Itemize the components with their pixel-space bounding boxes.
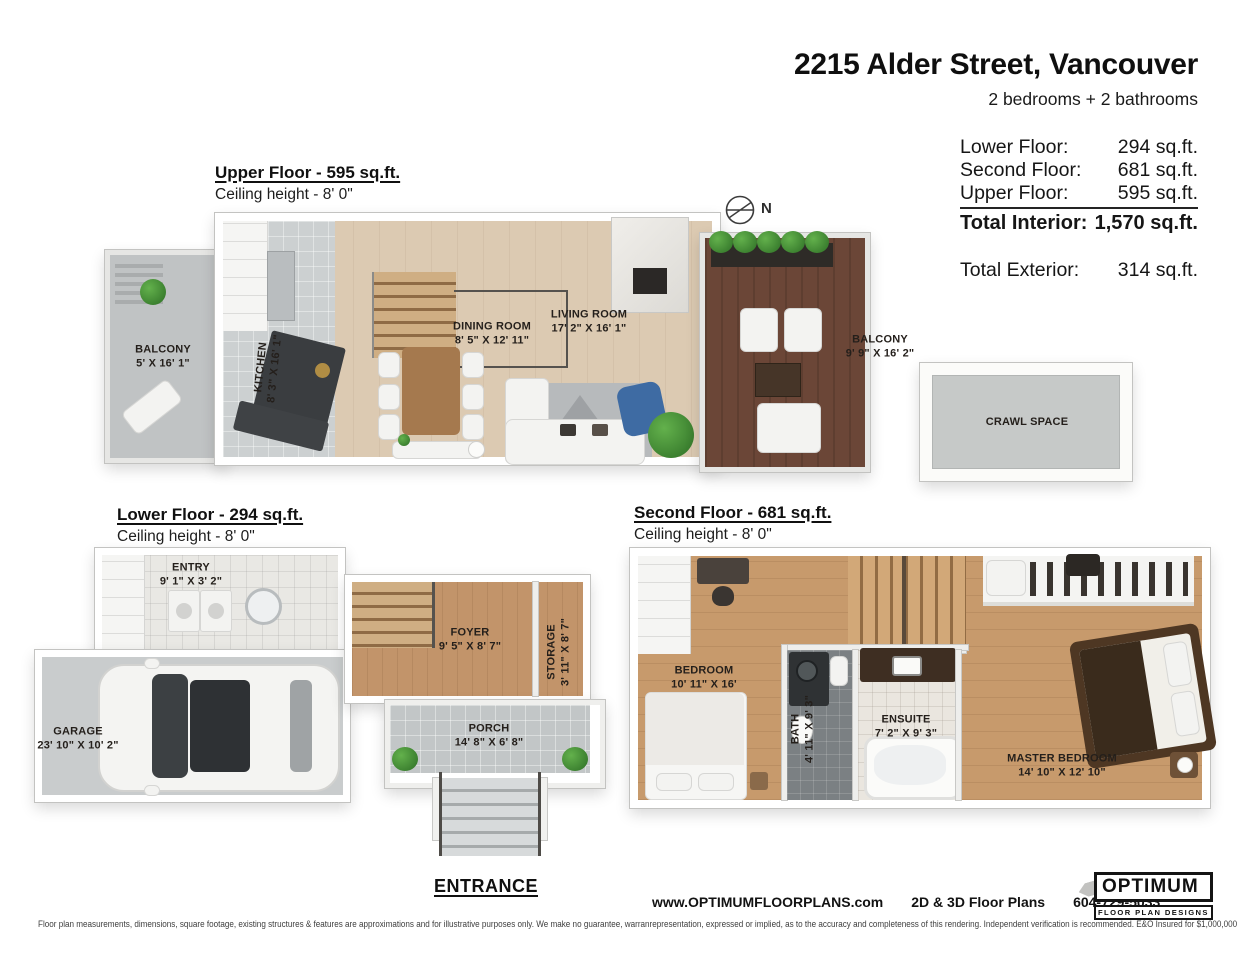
- room-label-bedroom: BEDROOM 10' 11" X 16': [671, 664, 737, 693]
- second-floor-title: Second Floor - 681 sq.ft.: [634, 503, 831, 523]
- firebox: [633, 268, 667, 294]
- room-label-crawl-space: CRAWL SPACE: [986, 415, 1068, 429]
- header-block: 2215 Alder Street, Vancouver 2 bedrooms …: [778, 48, 1198, 282]
- car-rear-window: [290, 680, 312, 772]
- desk: [697, 558, 749, 584]
- bathtub-basin: [874, 745, 946, 785]
- upper-floor-heading: Upper Floor - 595 sq.ft. Ceiling height …: [215, 163, 400, 204]
- bed-bath-subtitle: 2 bedrooms + 2 bathrooms: [778, 89, 1198, 110]
- dining-table: [402, 347, 460, 435]
- master-closet: [983, 556, 1194, 606]
- lower-floor-heading: Lower Floor - 294 sq.ft. Ceiling height …: [117, 505, 303, 546]
- dining-chair: [462, 414, 484, 440]
- bathtub: [864, 736, 962, 800]
- potted-plant: [140, 279, 166, 305]
- kitchen-cabinets: [223, 221, 268, 331]
- room-label-entry: ENTRY 9' 1" X 3' 2": [160, 561, 222, 590]
- floor-lamp: [468, 441, 485, 458]
- stair-divider: [902, 556, 906, 648]
- bath-sink: [796, 660, 818, 682]
- dryer-door: [208, 603, 224, 619]
- area-value: 681 sq.ft.: [1118, 159, 1198, 182]
- compass-icon: [720, 192, 760, 228]
- patio-armchair: [740, 308, 778, 352]
- patio-armchair: [784, 308, 822, 352]
- sofa-cushion: [560, 424, 576, 436]
- area-value: 314 sq.ft.: [1118, 259, 1198, 282]
- dining-chair: [378, 414, 400, 440]
- second-floor-stairs: [848, 556, 966, 648]
- ensuite-sink: [892, 656, 922, 676]
- car-mirror: [144, 658, 160, 669]
- stair-handrail: [538, 772, 541, 856]
- area-label: Total Exterior:: [960, 259, 1079, 282]
- lounge-chair: [121, 378, 184, 436]
- washer: [168, 590, 200, 632]
- dining-chair: [378, 384, 400, 410]
- planter-plant: [733, 231, 757, 253]
- optimum-logo: OPTIMUM FLOOR PLAN DESIGNS: [1094, 872, 1213, 920]
- foyer-stair-railing: [432, 582, 435, 648]
- table-lamp: [1177, 757, 1193, 773]
- car-roof-glass: [190, 680, 250, 772]
- footer-services: 2D & 3D Floor Plans: [911, 894, 1045, 910]
- car-mirror: [144, 785, 160, 796]
- master-bed: [1069, 623, 1217, 770]
- entrance-label: ENTRANCE: [434, 876, 538, 897]
- disclaimer-text: Floor plan measurements, dimensions, squ…: [38, 919, 1237, 929]
- water-heater: [245, 588, 282, 625]
- ensuite-master-wall: [956, 650, 961, 800]
- fruit-bowl: [315, 363, 330, 378]
- sofa-cushion: [592, 424, 608, 436]
- foyer-stairs: [352, 582, 432, 648]
- room-label-living-room: LIVING ROOM 17' 2" X 16' 1": [551, 308, 627, 337]
- stair-treads: [441, 778, 539, 856]
- floorplan-page: 2215 Alder Street, Vancouver 2 bedrooms …: [0, 0, 1242, 960]
- bed-pillow: [656, 773, 692, 791]
- area-row-total-exterior: Total Exterior: 314 sq.ft.: [960, 259, 1198, 282]
- car: [98, 664, 340, 792]
- room-label-storage: STORAGE 3' 11" X 8' 7": [545, 618, 574, 686]
- compass-north-label: N: [761, 200, 772, 217]
- area-label: Lower Floor:: [960, 136, 1068, 159]
- patio-sofa: [757, 403, 821, 453]
- fireplace: [612, 218, 688, 312]
- upper-floor-ceiling: Ceiling height - 8' 0": [215, 186, 400, 204]
- lower-floor-ceiling: Ceiling height - 8' 0": [117, 528, 303, 546]
- console-plant: [398, 434, 410, 446]
- room-label-foyer: FOYER 9' 5" X 8' 7": [439, 626, 501, 655]
- dining-chair: [462, 384, 484, 410]
- area-row-total-interior: Total Interior: 1,570 sq.ft.: [960, 209, 1198, 235]
- stair-handrail: [439, 772, 442, 856]
- porch-shrub: [392, 747, 418, 771]
- area-row-upper: Upper Floor: 595 sq.ft.: [960, 182, 1198, 209]
- room-label-garage: GARAGE 23' 10" X 10' 2": [37, 725, 118, 754]
- room-label-balcony-right: BALCONY 9' 9" X 16' 2": [846, 333, 915, 362]
- second-floor-heading: Second Floor - 681 sq.ft. Ceiling height…: [634, 503, 831, 544]
- room-label-balcony-left: BALCONY 5' X 16' 1": [135, 343, 191, 372]
- room-label-ensuite: ENSUITE 7' 2" X 9' 3": [875, 713, 937, 742]
- desk-chair: [712, 586, 734, 606]
- upper-floor-title: Upper Floor - 595 sq.ft.: [215, 163, 400, 183]
- room-label-bath: BATH 4' 11" X 9' 3": [789, 695, 818, 763]
- planter-plant: [709, 231, 733, 253]
- entry-closet: [102, 555, 145, 651]
- area-table: Lower Floor: 294 sq.ft. Second Floor: 68…: [960, 136, 1198, 282]
- staircase: [372, 272, 456, 358]
- porch-shrub: [562, 747, 588, 771]
- area-label: Upper Floor:: [960, 182, 1068, 205]
- bed-duvet: [646, 693, 744, 765]
- entrance-stairs: [433, 778, 547, 858]
- hanging-clothes: [1030, 562, 1188, 596]
- area-label: Total Interior:: [960, 212, 1087, 235]
- car-windshield: [152, 674, 188, 778]
- area-value: 595 sq.ft.: [1118, 182, 1198, 205]
- bed-pillow: [698, 773, 734, 791]
- area-value: 1,570 sq.ft.: [1095, 212, 1198, 235]
- dining-chair: [462, 352, 484, 378]
- dresser: [986, 560, 1026, 596]
- indoor-plant: [648, 412, 694, 458]
- area-row-lower: Lower Floor: 294 sq.ft.: [960, 136, 1198, 159]
- dryer: [200, 590, 232, 632]
- footer-website: www.OPTIMUMFLOORPLANS.com: [652, 894, 883, 910]
- area-label: Second Floor:: [960, 159, 1081, 182]
- room-label-dining-room: DINING ROOM 8' 5" X 12' 11": [453, 320, 531, 349]
- footer-contact-row: www.OPTIMUMFLOORPLANS.com 2D & 3D Floor …: [652, 894, 1160, 910]
- room-label-master-bedroom: MASTER BEDROOM 14' 10" X 12' 10": [1007, 752, 1117, 781]
- bed: [645, 692, 747, 800]
- dining-chair: [378, 352, 400, 378]
- room-label-porch: PORCH 14' 8" X 6' 8": [455, 722, 524, 751]
- master-nightstand: [1170, 752, 1198, 778]
- area-row-second: Second Floor: 681 sq.ft.: [960, 159, 1198, 182]
- storage-wall: [533, 582, 538, 696]
- area-value: 294 sq.ft.: [1118, 136, 1198, 159]
- washer-door: [176, 603, 192, 619]
- logo-subtitle: FLOOR PLAN DESIGNS: [1094, 905, 1213, 920]
- nightstand: [750, 772, 768, 790]
- bath-towel-shelf: [830, 656, 848, 686]
- second-floor-ceiling: Ceiling height - 8' 0": [634, 526, 831, 544]
- lower-floor-title: Lower Floor - 294 sq.ft.: [117, 505, 303, 525]
- coffee-table: [755, 363, 801, 397]
- fridge: [267, 251, 295, 321]
- logo-title: OPTIMUM: [1094, 872, 1213, 902]
- page-title: 2215 Alder Street, Vancouver: [778, 48, 1198, 81]
- bedroom-closet: [638, 556, 691, 654]
- luggage: [1066, 554, 1100, 576]
